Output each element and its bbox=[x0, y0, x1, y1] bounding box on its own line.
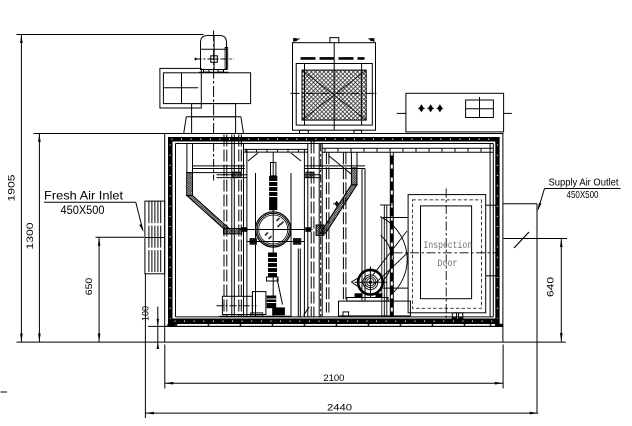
svg-text:Door: Door bbox=[438, 259, 458, 270]
svg-text:Supply Air Outlet: Supply Air Outlet bbox=[549, 177, 619, 189]
svg-text:Inspection: Inspection bbox=[424, 240, 473, 252]
svg-text:1905: 1905 bbox=[7, 175, 18, 202]
svg-text:450X500: 450X500 bbox=[567, 189, 599, 201]
svg-text:1300: 1300 bbox=[25, 223, 36, 250]
svg-text:650: 650 bbox=[84, 278, 95, 296]
svg-text:2440: 2440 bbox=[327, 402, 352, 413]
svg-text:640: 640 bbox=[546, 277, 557, 297]
svg-text:2100: 2100 bbox=[323, 373, 344, 384]
svg-text:100: 100 bbox=[141, 306, 152, 321]
svg-text:450X500: 450X500 bbox=[61, 203, 105, 217]
svg-text:Fresh Air Inlet: Fresh Air Inlet bbox=[44, 189, 124, 203]
